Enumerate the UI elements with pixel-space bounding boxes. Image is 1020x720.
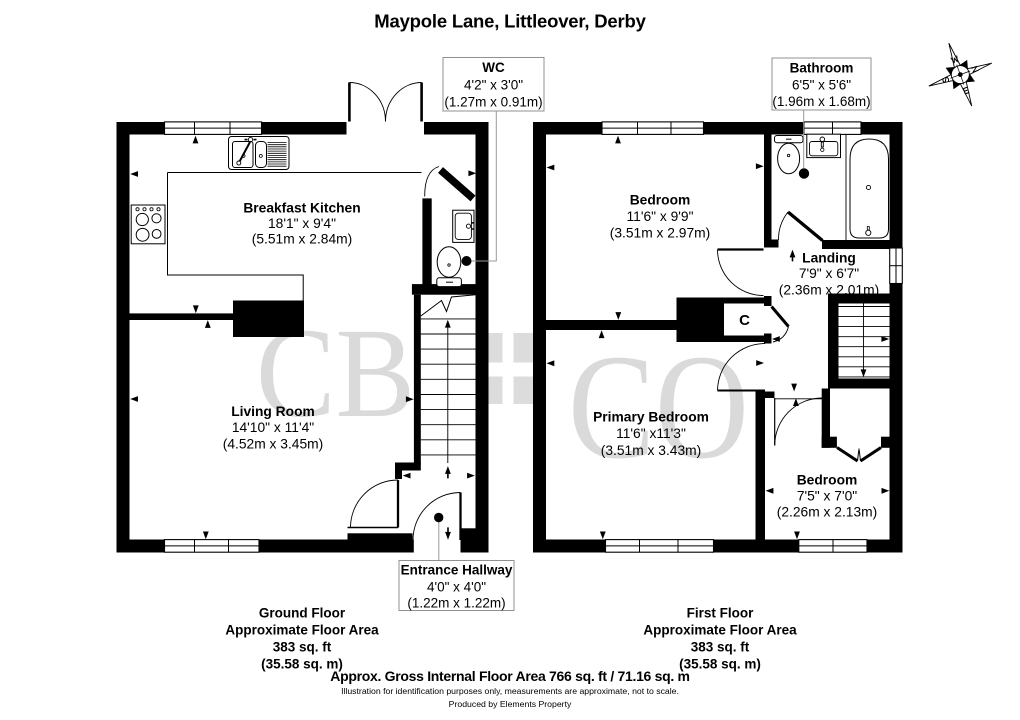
svg-text:Bedroom: Bedroom xyxy=(797,473,858,488)
svg-text:(1.22m x 1.22m): (1.22m x 1.22m) xyxy=(407,596,505,611)
svg-text:(4.52m x 3.45m): (4.52m x 3.45m) xyxy=(223,437,323,452)
svg-text:4'2" x 3'0": 4'2" x 3'0" xyxy=(464,78,523,93)
svg-text:(1.27m x 0.91m): (1.27m x 0.91m) xyxy=(444,95,542,110)
svg-text:WC: WC xyxy=(482,60,505,75)
svg-text:(35.58 sq. m): (35.58 sq. m) xyxy=(679,657,761,672)
svg-text:383 sq. ft: 383 sq. ft xyxy=(273,640,332,655)
svg-text:Entrance Hallway: Entrance Hallway xyxy=(401,563,513,578)
svg-text:Primary Bedroom: Primary Bedroom xyxy=(593,410,709,425)
svg-text:Living Room: Living Room xyxy=(231,404,315,419)
svg-text:6'5" x 5'6": 6'5" x 5'6" xyxy=(792,78,851,93)
svg-text:First Floor: First Floor xyxy=(687,606,754,621)
svg-text:Breakfast Kitchen: Breakfast Kitchen xyxy=(243,201,360,216)
svg-text:Illustration for identificatio: Illustration for identification purposes… xyxy=(341,686,679,696)
svg-text:7'5" x 7'0": 7'5" x 7'0" xyxy=(797,489,857,504)
svg-text:Approximate Floor Area: Approximate Floor Area xyxy=(643,623,797,638)
svg-text:(5.51m x 2.84m): (5.51m x 2.84m) xyxy=(252,232,352,247)
svg-text:(2.26m x 2.13m): (2.26m x 2.13m) xyxy=(777,505,877,520)
svg-text:Maypole Lane, Littleover, Derb: Maypole Lane, Littleover, Derby xyxy=(374,11,646,32)
svg-text:CO: CO xyxy=(568,324,749,490)
svg-text:(3.51m x 3.43m): (3.51m x 3.43m) xyxy=(601,443,701,458)
svg-text:C: C xyxy=(739,312,750,329)
svg-text:Approx. Gross Internal Floor A: Approx. Gross Internal Floor Area 766 sq… xyxy=(330,668,689,684)
svg-text:14'10" x 11'4": 14'10" x 11'4" xyxy=(232,420,314,435)
svg-text:Ground Floor: Ground Floor xyxy=(259,606,346,621)
svg-text:Bedroom: Bedroom xyxy=(630,193,691,208)
svg-text:11'6" x 9'9": 11'6" x 9'9" xyxy=(627,209,694,224)
svg-text:(2.36m x 2.01m): (2.36m x 2.01m) xyxy=(779,283,879,298)
svg-text:Bathroom: Bathroom xyxy=(790,61,854,76)
svg-text:Approximate Floor Area: Approximate Floor Area xyxy=(225,623,379,638)
svg-text:Landing: Landing xyxy=(802,251,856,266)
svg-text:383 sq. ft: 383 sq. ft xyxy=(691,640,750,655)
svg-text:(1.96m x 1.68m): (1.96m x 1.68m) xyxy=(772,94,870,109)
svg-text:11'6" x11'3": 11'6" x11'3" xyxy=(616,426,686,441)
svg-text:18'1" x 9'4": 18'1" x 9'4" xyxy=(268,216,336,231)
svg-text:4'0" x 4'0": 4'0" x 4'0" xyxy=(427,580,486,595)
svg-text:Produced by Elements Property: Produced by Elements Property xyxy=(449,699,572,709)
svg-text:(3.51m x 2.97m): (3.51m x 2.97m) xyxy=(610,226,710,241)
svg-text:7'9" x 6'7": 7'9" x 6'7" xyxy=(799,266,859,281)
